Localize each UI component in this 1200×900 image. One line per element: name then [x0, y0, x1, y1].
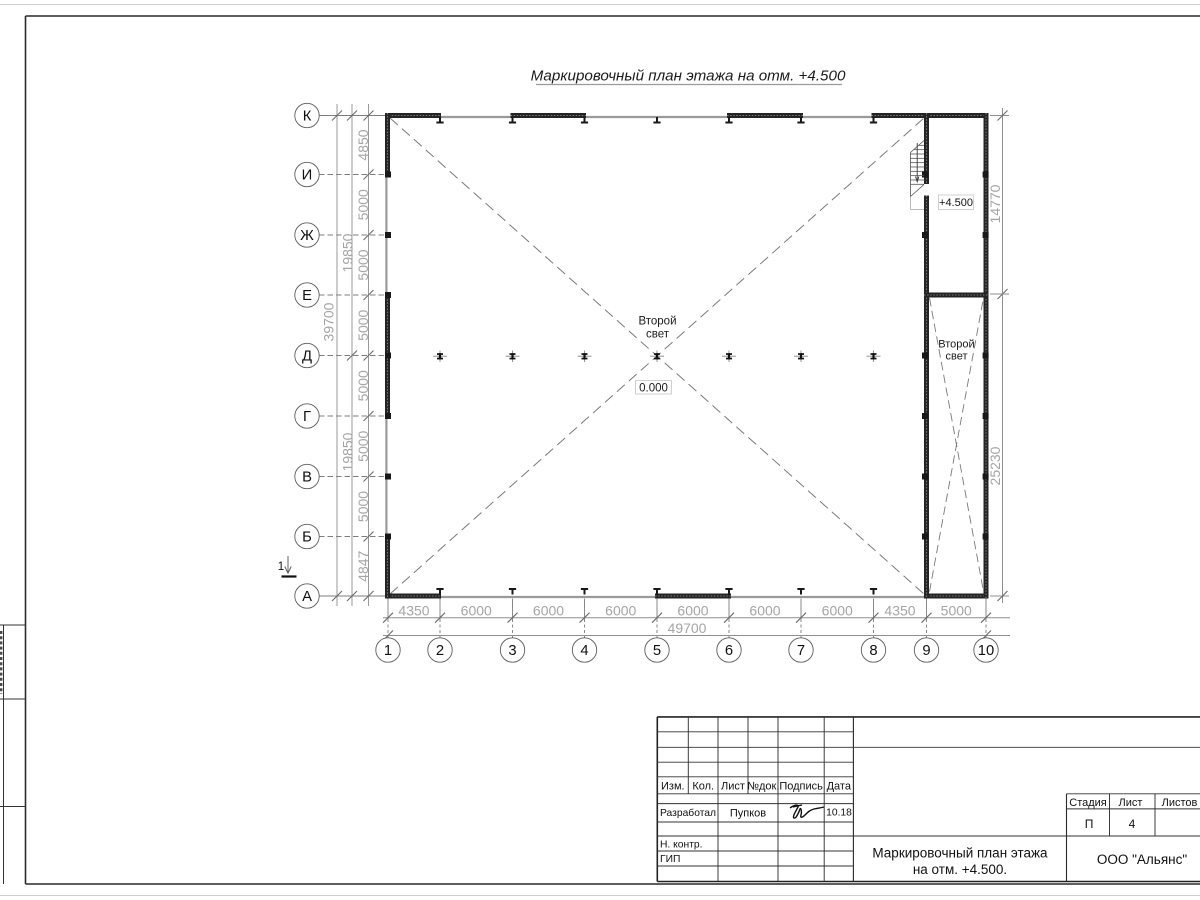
- svg-text:5000: 5000: [355, 370, 371, 401]
- svg-text:В: В: [302, 470, 312, 486]
- svg-text:свет: свет: [945, 351, 967, 363]
- svg-text:Д: Д: [302, 349, 312, 365]
- svg-text:ГИП: ГИП: [660, 854, 680, 865]
- svg-text:Н. контр.: Н. контр.: [660, 840, 703, 851]
- svg-text:на отм. +4.500.: на отм. +4.500.: [913, 862, 1007, 877]
- svg-text:№док.: №док.: [747, 781, 779, 793]
- svg-text:5000: 5000: [355, 309, 371, 340]
- svg-text:П: П: [1085, 817, 1094, 831]
- svg-text:25230: 25230: [987, 446, 1003, 485]
- svg-text:Маркировочный план этажа: Маркировочный план этажа: [872, 846, 1048, 861]
- svg-text:6000: 6000: [822, 602, 853, 618]
- svg-text:ООО "Альянс": ООО "Альянс": [1097, 852, 1187, 867]
- svg-text:Разработал: Разработал: [660, 807, 716, 819]
- svg-text:1: 1: [384, 643, 392, 659]
- svg-text:49700: 49700: [668, 620, 707, 636]
- svg-text:39700: 39700: [321, 302, 337, 341]
- svg-text:Подпись: Подпись: [779, 781, 823, 793]
- svg-text:6000: 6000: [461, 602, 492, 618]
- svg-text:14770: 14770: [987, 184, 1003, 223]
- svg-text:К: К: [303, 109, 312, 125]
- svg-text:10.18: 10.18: [826, 808, 852, 819]
- svg-text:Изм.: Изм.: [661, 781, 685, 793]
- svg-text:И: И: [302, 168, 313, 184]
- svg-text:Кол.: Кол.: [692, 781, 714, 793]
- svg-text:9: 9: [922, 643, 930, 659]
- svg-text:6000: 6000: [749, 602, 780, 618]
- svg-text:3: 3: [508, 643, 516, 659]
- svg-text:Лист: Лист: [721, 781, 745, 793]
- svg-text:5000: 5000: [355, 430, 371, 461]
- svg-text:4: 4: [580, 643, 588, 659]
- svg-text:Второй: Второй: [638, 316, 676, 328]
- svg-text:Лист: Лист: [1119, 797, 1143, 809]
- svg-text:Стадия: Стадия: [1069, 797, 1107, 809]
- svg-text:4847: 4847: [355, 550, 371, 581]
- svg-text:+4.500: +4.500: [939, 197, 973, 209]
- svg-text:7: 7: [797, 643, 805, 659]
- svg-text:4850: 4850: [355, 129, 371, 160]
- svg-text:8: 8: [869, 643, 877, 659]
- svg-text:5000: 5000: [355, 249, 371, 280]
- svg-text:Маркировочный план этажа на от: Маркировочный план этажа на отм. +4.500: [531, 68, 846, 85]
- svg-text:Е: Е: [302, 288, 312, 304]
- svg-text:10: 10: [978, 643, 994, 659]
- svg-text:6000: 6000: [533, 602, 564, 618]
- svg-text:5000: 5000: [355, 189, 371, 220]
- svg-text:А: А: [302, 589, 312, 605]
- svg-text:1: 1: [278, 561, 284, 573]
- svg-text:4350: 4350: [884, 602, 915, 618]
- svg-text:19850: 19850: [339, 432, 355, 471]
- svg-text:5000: 5000: [355, 491, 371, 522]
- svg-text:5000: 5000: [941, 602, 972, 618]
- svg-text:4: 4: [1129, 817, 1136, 831]
- svg-text:6000: 6000: [605, 602, 636, 618]
- svg-text:0.000: 0.000: [639, 383, 668, 395]
- svg-text:Пупков: Пупков: [730, 808, 766, 820]
- svg-text:2: 2: [436, 643, 444, 659]
- svg-text:5: 5: [653, 643, 661, 659]
- svg-text:Дата: Дата: [827, 781, 852, 793]
- svg-text:Г: Г: [303, 409, 311, 425]
- svg-text:19850: 19850: [339, 233, 355, 272]
- svg-text:свет: свет: [646, 329, 670, 341]
- svg-text:Б: Б: [302, 530, 312, 546]
- svg-text:4350: 4350: [398, 602, 429, 618]
- svg-text:Ж: Ж: [300, 228, 314, 244]
- svg-text:6000: 6000: [677, 602, 708, 618]
- svg-text:Листов: Листов: [1162, 797, 1198, 809]
- svg-text:Второй: Второй: [938, 339, 974, 351]
- svg-text:6: 6: [725, 643, 733, 659]
